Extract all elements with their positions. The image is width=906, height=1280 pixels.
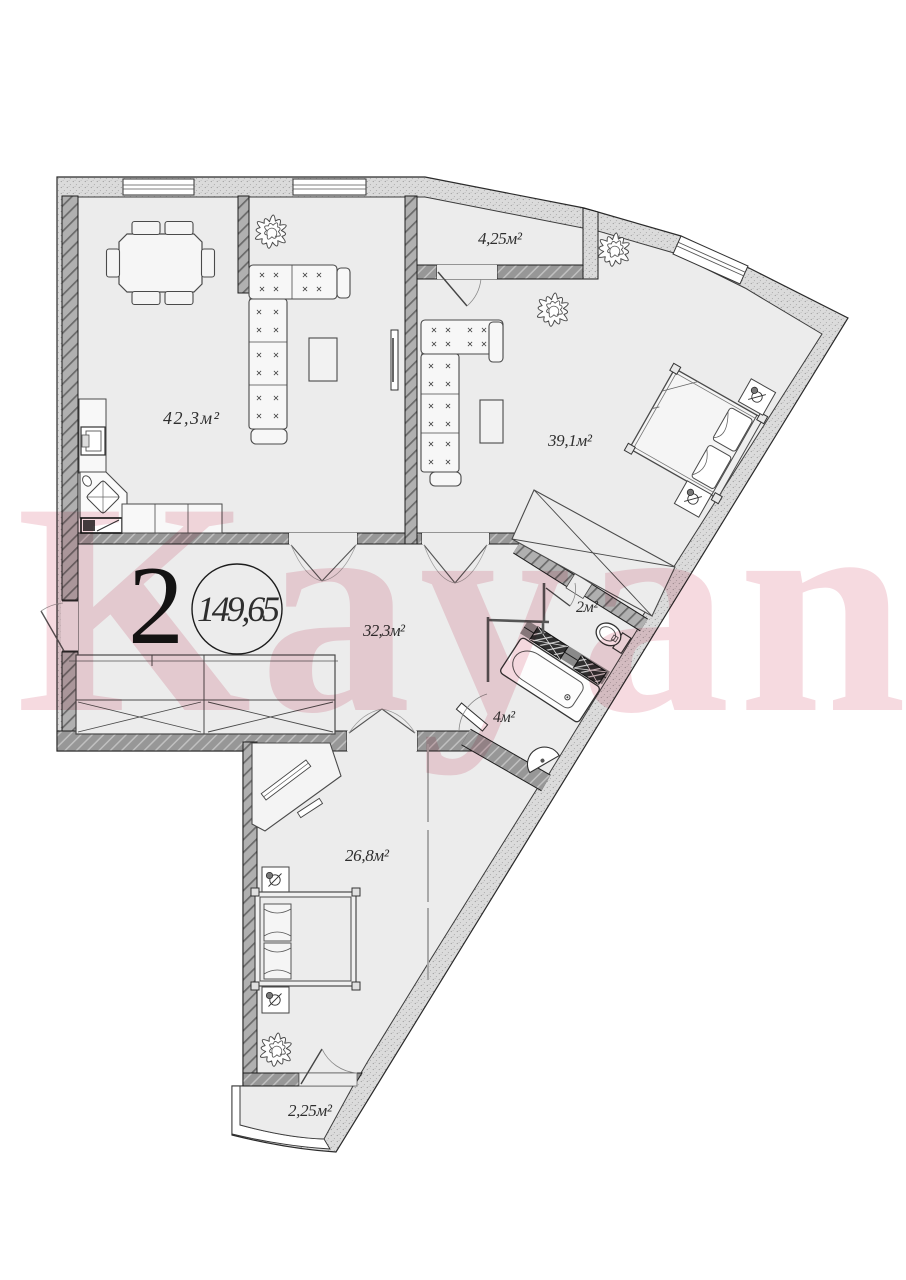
svg-text:Kayan: Kayan bbox=[16, 440, 906, 776]
svg-text:2,25м²: 2,25м² bbox=[288, 1101, 333, 1120]
svg-text:4,25м²: 4,25м² bbox=[478, 229, 523, 248]
svg-text:26,8м²: 26,8м² bbox=[345, 846, 390, 865]
svg-text:42,3м²: 42,3м² bbox=[163, 408, 220, 428]
